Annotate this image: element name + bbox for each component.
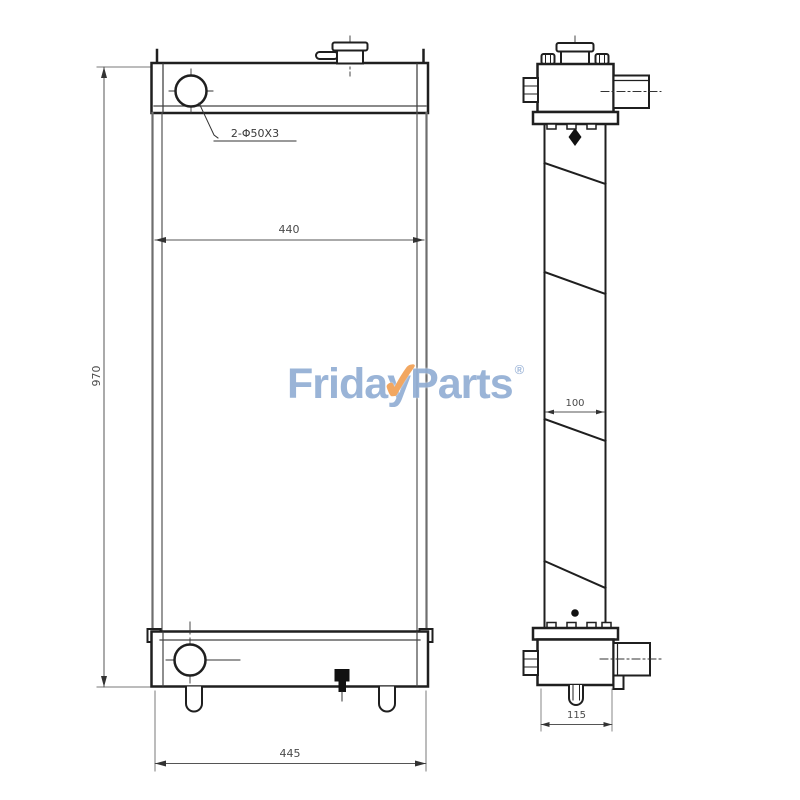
arrow-left-icon <box>546 410 554 415</box>
side-core <box>545 124 606 628</box>
side-drain-plug <box>569 685 583 705</box>
dim-100-label: 100 <box>565 398 584 409</box>
drain-plug-icon <box>335 669 350 682</box>
mount-pin-right <box>379 687 395 712</box>
side-bottom-tank <box>524 623 663 706</box>
mount-pin-left <box>186 687 202 712</box>
dim-440-label: 440 <box>279 223 300 236</box>
side-top-tank <box>524 64 662 129</box>
arrow-right-icon <box>413 237 424 243</box>
pipe-bracket <box>614 676 624 690</box>
dim-970-label: 970 <box>90 366 103 387</box>
arrow-left-icon <box>155 761 166 767</box>
side-view: 100 115 <box>524 36 663 731</box>
arrow-left-icon <box>541 722 550 727</box>
dim-core-depth: 100 <box>546 398 604 414</box>
dim-core-width: 440 <box>155 223 424 243</box>
dim-445-label: 445 <box>280 747 301 760</box>
dim-overall-height: 970 <box>90 67 150 687</box>
arrow-right-icon <box>604 722 613 727</box>
radiator-drawing: 970 2-Φ50X3 <box>0 0 800 800</box>
front-view: 970 2-Φ50X3 <box>90 36 433 771</box>
flow-marker-icon <box>569 128 582 146</box>
port-size-label: 2-Φ50X3 <box>231 127 279 140</box>
front-core <box>153 113 427 630</box>
core-dot <box>571 609 579 617</box>
arrow-left-icon <box>155 237 166 243</box>
arrow-up-icon <box>101 67 107 78</box>
side-bottom-stub <box>524 651 539 675</box>
arrow-down-icon <box>101 676 107 687</box>
side-top-stub <box>524 78 539 102</box>
arrow-right-icon <box>415 761 426 767</box>
break-line <box>545 419 606 441</box>
break-line <box>545 561 606 588</box>
dim-115-label: 115 <box>567 710 586 721</box>
break-line <box>545 272 606 294</box>
break-line <box>545 163 606 184</box>
arrow-right-icon <box>596 410 604 415</box>
drawing-canvas: 970 2-Φ50X3 <box>0 0 800 800</box>
